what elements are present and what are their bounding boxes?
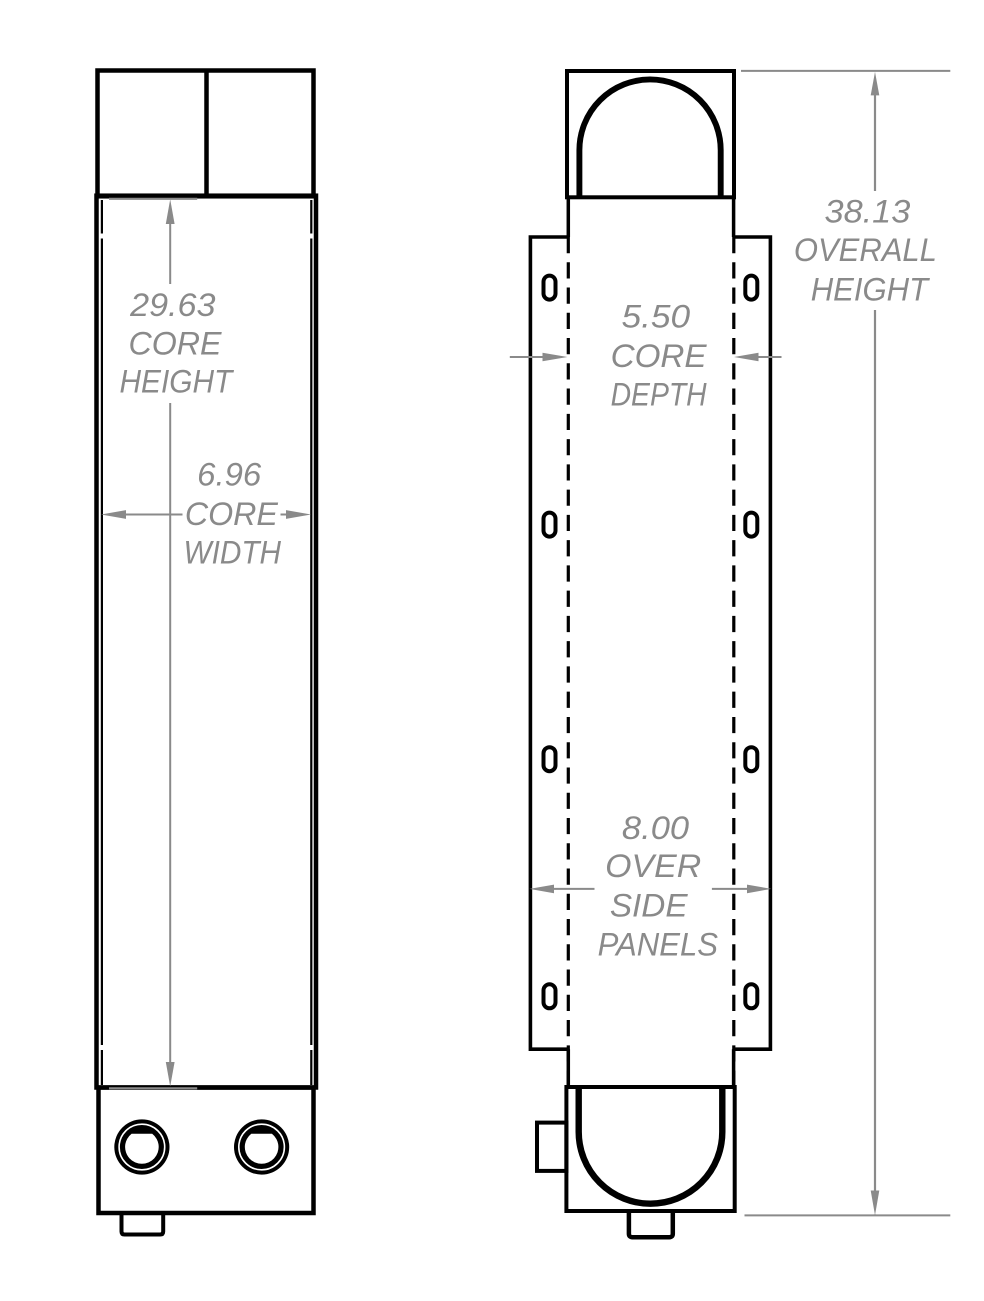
svg-text:OVER: OVER [605, 848, 701, 884]
svg-text:5.50: 5.50 [622, 298, 691, 334]
svg-text:DEPTH: DEPTH [611, 377, 708, 413]
svg-text:6.96: 6.96 [197, 457, 261, 493]
svg-text:WIDTH: WIDTH [184, 534, 282, 570]
svg-text:OVERALL: OVERALL [794, 232, 937, 268]
svg-text:HEIGHT: HEIGHT [811, 271, 931, 307]
svg-text:29.63: 29.63 [129, 287, 216, 323]
svg-text:CORE: CORE [129, 325, 223, 361]
svg-text:8.00: 8.00 [622, 810, 689, 846]
svg-text:CORE: CORE [611, 338, 708, 374]
svg-text:PANELS: PANELS [598, 927, 718, 963]
svg-text:38.13: 38.13 [825, 193, 911, 229]
svg-text:HEIGHT: HEIGHT [119, 364, 234, 400]
svg-text:CORE: CORE [185, 496, 279, 532]
svg-text:SIDE: SIDE [610, 888, 688, 924]
